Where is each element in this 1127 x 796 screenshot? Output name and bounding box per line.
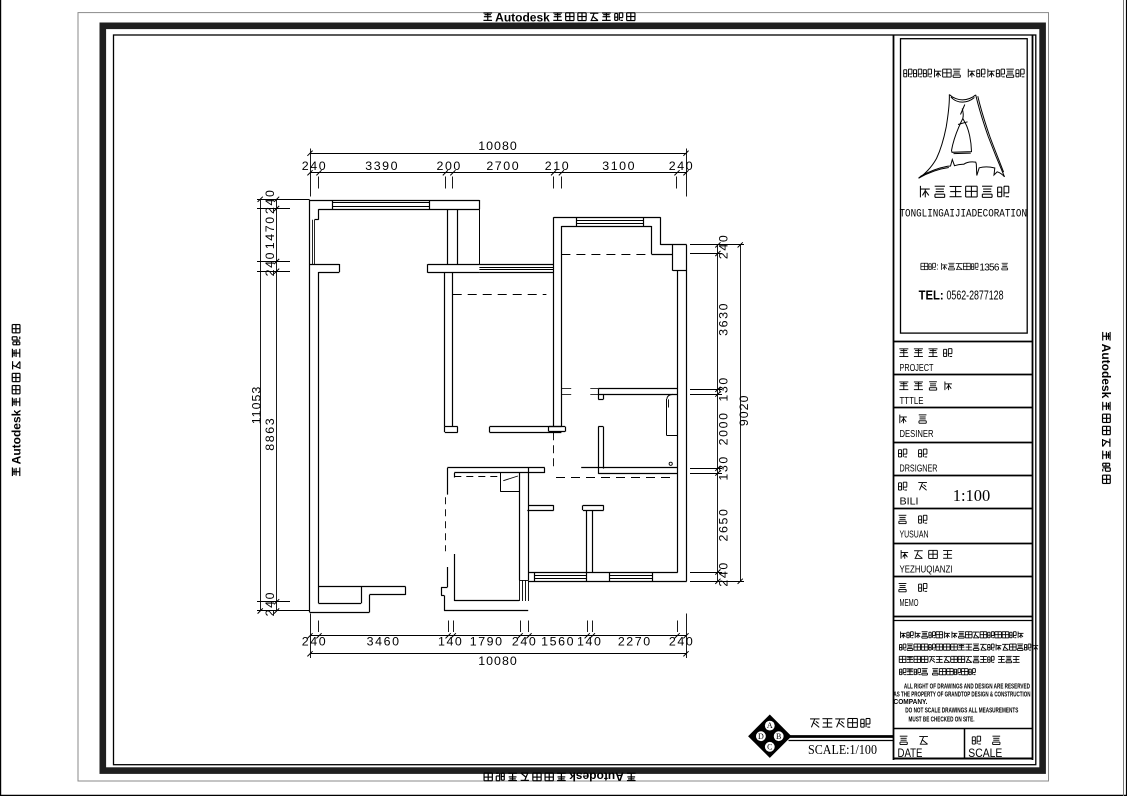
svg-text:TEL:: TEL: [919,287,944,302]
svg-text:3100: 3100 [602,159,636,173]
svg-text:10080: 10080 [478,654,517,668]
svg-text:DESINER: DESINER [900,428,934,440]
svg-text:SCALE: SCALE [968,746,1002,760]
svg-text:200: 200 [436,159,461,173]
svg-text:DATE: DATE [898,746,923,760]
svg-text:BILI: BILI [900,496,919,508]
svg-text:MUST BE CHECKED ON SITE.: MUST BE CHECKED ON SITE. [909,715,975,724]
svg-text:Autodesk: Autodesk [1099,344,1113,399]
svg-text:DRSIGNER: DRSIGNER [900,462,938,474]
svg-text:240: 240 [302,159,327,173]
svg-text:1560: 1560 [541,635,575,649]
svg-text:A: A [767,721,773,730]
svg-text:1470: 1470 [263,215,277,249]
svg-text:240: 240 [512,635,537,649]
svg-text:Autodesk: Autodesk [569,769,624,783]
svg-text:8863: 8863 [263,417,277,451]
svg-text:2650: 2650 [717,508,731,542]
svg-text:YEZHUQIANZI: YEZHUQIANZI [900,564,953,576]
svg-text:130: 130 [717,376,731,401]
svg-text:240: 240 [263,251,277,276]
svg-text:DO NOT SCALE DRAWINGS ALL MEAS: DO NOT SCALE DRAWINGS ALL MEASUREMENTS [905,706,1018,715]
svg-text:YUSUAN: YUSUAN [900,529,929,541]
svg-text:3630: 3630 [717,302,731,336]
svg-text::: : [936,261,939,271]
svg-text:PROJECT: PROJECT [900,362,934,374]
svg-text:2000: 2000 [717,411,731,445]
svg-text:130: 130 [717,455,731,480]
svg-text:2700: 2700 [486,159,520,173]
svg-text:D: D [758,732,764,741]
svg-text:140: 140 [577,635,602,649]
svg-text:140: 140 [438,635,463,649]
svg-text:3460: 3460 [367,635,401,649]
svg-text:1790: 1790 [470,635,504,649]
svg-text:SCALE:1/100: SCALE:1/100 [808,742,877,757]
svg-text:B: B [776,732,781,741]
svg-text:210: 210 [545,159,570,173]
svg-text:TONGLINGAIJIADECORATION: TONGLINGAIJIADECORATION [900,209,1028,221]
svg-text:3390: 3390 [365,159,399,173]
svg-text:10080: 10080 [478,139,517,153]
svg-text:1:100: 1:100 [953,486,991,505]
svg-text:0562-2877128: 0562-2877128 [947,287,1004,302]
svg-text:Autodesk: Autodesk [495,10,550,24]
svg-text:TTTLE: TTTLE [900,395,924,407]
svg-text:9020: 9020 [737,395,751,427]
svg-text:2270: 2270 [618,635,652,649]
svg-text:240: 240 [669,635,694,649]
svg-text:Autodesk: Autodesk [10,409,24,464]
svg-text:11053: 11053 [249,386,263,425]
svg-text:240: 240 [717,561,731,586]
svg-text:1356: 1356 [979,262,999,273]
svg-text:240: 240 [669,159,694,173]
svg-text:240: 240 [263,188,277,213]
svg-text:240: 240 [263,591,277,616]
svg-text:MEMO: MEMO [900,597,919,609]
svg-text:240: 240 [717,234,731,259]
svg-text:C: C [767,742,772,751]
svg-text:240: 240 [302,635,327,649]
